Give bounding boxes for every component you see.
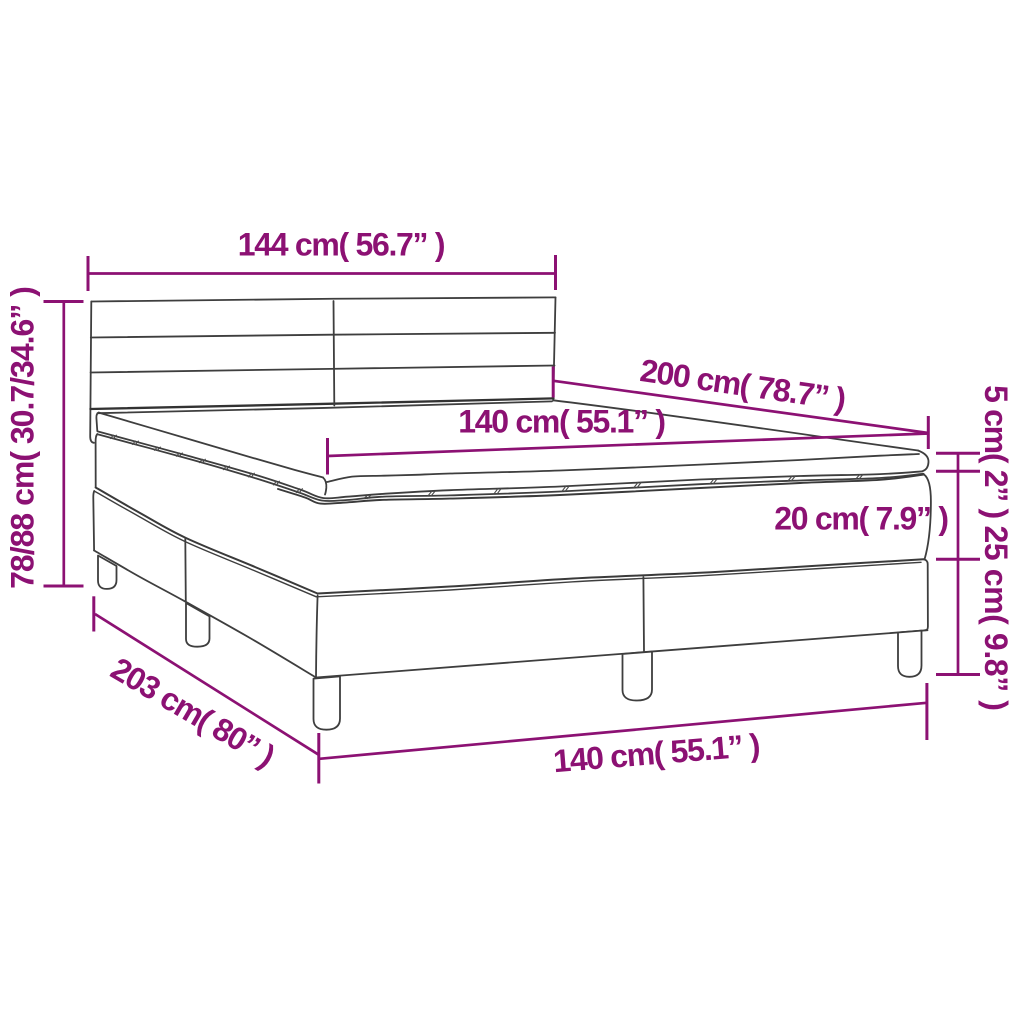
- svg-text:20 cm( 7.9” ): 20 cm( 7.9” ): [774, 500, 948, 536]
- svg-text:5 cm( 2” ): 5 cm( 2” ): [978, 385, 1014, 518]
- svg-text:140 cm( 55.1” ): 140 cm( 55.1” ): [458, 404, 665, 440]
- svg-text:144 cm( 56.7” ): 144 cm( 56.7” ): [238, 227, 445, 263]
- svg-text:78/88 cm( 30.7/34.6” ): 78/88 cm( 30.7/34.6” ): [5, 287, 41, 589]
- svg-text:25 cm( 9.8” ): 25 cm( 9.8” ): [978, 525, 1014, 710]
